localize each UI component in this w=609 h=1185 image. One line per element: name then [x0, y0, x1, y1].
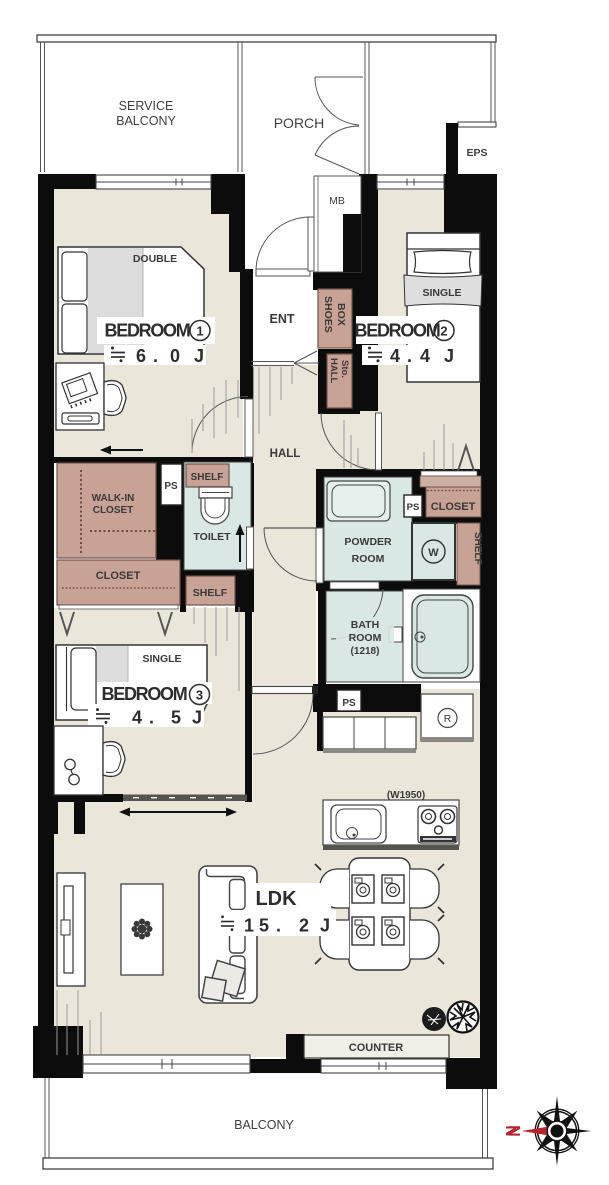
- svg-text:(1218): (1218): [351, 646, 380, 657]
- svg-text:SHELF: SHELF: [191, 472, 224, 483]
- svg-text:CLOSET: CLOSET: [96, 570, 141, 582]
- svg-text:R: R: [444, 713, 452, 725]
- svg-text:LDK: LDK: [255, 888, 297, 910]
- svg-text:ENT: ENT: [270, 312, 295, 326]
- svg-text:COUNTER: COUNTER: [349, 1042, 403, 1054]
- svg-text:2: 2: [440, 324, 447, 339]
- svg-text:BOX: BOX: [335, 303, 347, 326]
- svg-text:SINGLE: SINGLE: [142, 653, 181, 665]
- svg-text:BATH: BATH: [351, 619, 379, 631]
- svg-text:POWDER: POWDER: [344, 536, 392, 548]
- svg-text:SHELF: SHELF: [193, 587, 228, 599]
- svg-text:BEDROOM: BEDROOM: [102, 684, 187, 704]
- svg-text:BEDROOM: BEDROOM: [355, 321, 440, 341]
- svg-text:ROOM: ROOM: [352, 553, 385, 565]
- svg-text:WALK-IN: WALK-IN: [92, 493, 135, 504]
- svg-text:ROOM: ROOM: [349, 632, 382, 644]
- svg-text:Sto.: Sto.: [339, 360, 350, 378]
- svg-text:SHELF: SHELF: [472, 532, 483, 565]
- svg-text:EPS: EPS: [466, 147, 487, 159]
- svg-text:PS: PS: [164, 481, 178, 492]
- svg-text:HALL: HALL: [328, 358, 339, 384]
- svg-text:1: 1: [196, 324, 203, 339]
- svg-text:MB: MB: [329, 195, 345, 207]
- svg-text:3: 3: [196, 688, 203, 703]
- svg-text:HALL: HALL: [270, 448, 301, 460]
- svg-text:SERVICE: SERVICE: [119, 99, 174, 113]
- svg-text:TOILET: TOILET: [193, 531, 231, 543]
- svg-text:N: N: [503, 1126, 520, 1137]
- svg-text:W: W: [428, 547, 439, 559]
- svg-text:SHOES: SHOES: [322, 296, 334, 333]
- svg-text:PORCH: PORCH: [274, 115, 325, 131]
- svg-text:DOUBLE: DOUBLE: [133, 253, 177, 265]
- svg-text:BALCONY: BALCONY: [116, 114, 176, 128]
- svg-text:SINGLE: SINGLE: [422, 287, 461, 299]
- svg-text:BEDROOM: BEDROOM: [105, 321, 190, 341]
- svg-text:CLOSET: CLOSET: [431, 501, 476, 513]
- svg-text:4.4J: 4.4J: [390, 346, 454, 366]
- svg-text:BALCONY: BALCONY: [234, 1118, 294, 1132]
- svg-text:CLOSET: CLOSET: [93, 505, 134, 516]
- svg-text:PS: PS: [342, 698, 356, 709]
- svg-text:(W1950): (W1950): [387, 790, 425, 801]
- svg-text:PS: PS: [407, 502, 420, 513]
